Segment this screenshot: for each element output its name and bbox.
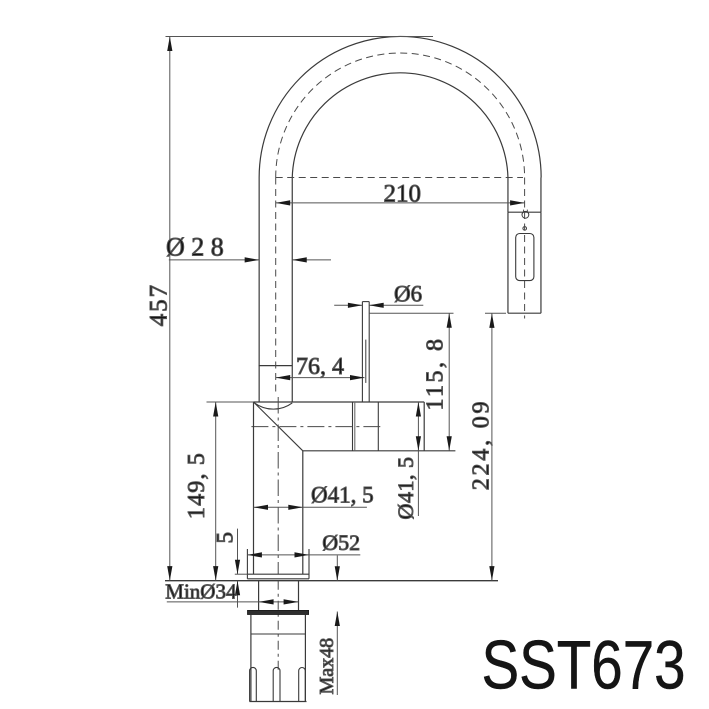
svg-text:Ø52: Ø52 xyxy=(322,530,360,555)
svg-text:210: 210 xyxy=(384,181,422,208)
svg-text:5: 5 xyxy=(213,532,238,544)
svg-text:76, 4: 76, 4 xyxy=(296,354,344,380)
svg-text:115, 8: 115, 8 xyxy=(423,336,449,410)
svg-text:Ø6: Ø6 xyxy=(394,281,422,306)
svg-text:457: 457 xyxy=(146,283,173,327)
svg-text:MinØ34: MinØ34 xyxy=(165,580,237,604)
svg-text:Max48: Max48 xyxy=(316,638,338,695)
svg-text:SST673: SST673 xyxy=(482,627,686,704)
svg-text:Ø41, 5: Ø41, 5 xyxy=(393,457,418,520)
svg-text:149, 5: 149, 5 xyxy=(184,452,210,519)
svg-text:Ø28: Ø28 xyxy=(166,232,230,261)
svg-text:Ø41, 5: Ø41, 5 xyxy=(311,483,374,508)
svg-text:224, 09: 224, 09 xyxy=(469,399,495,491)
